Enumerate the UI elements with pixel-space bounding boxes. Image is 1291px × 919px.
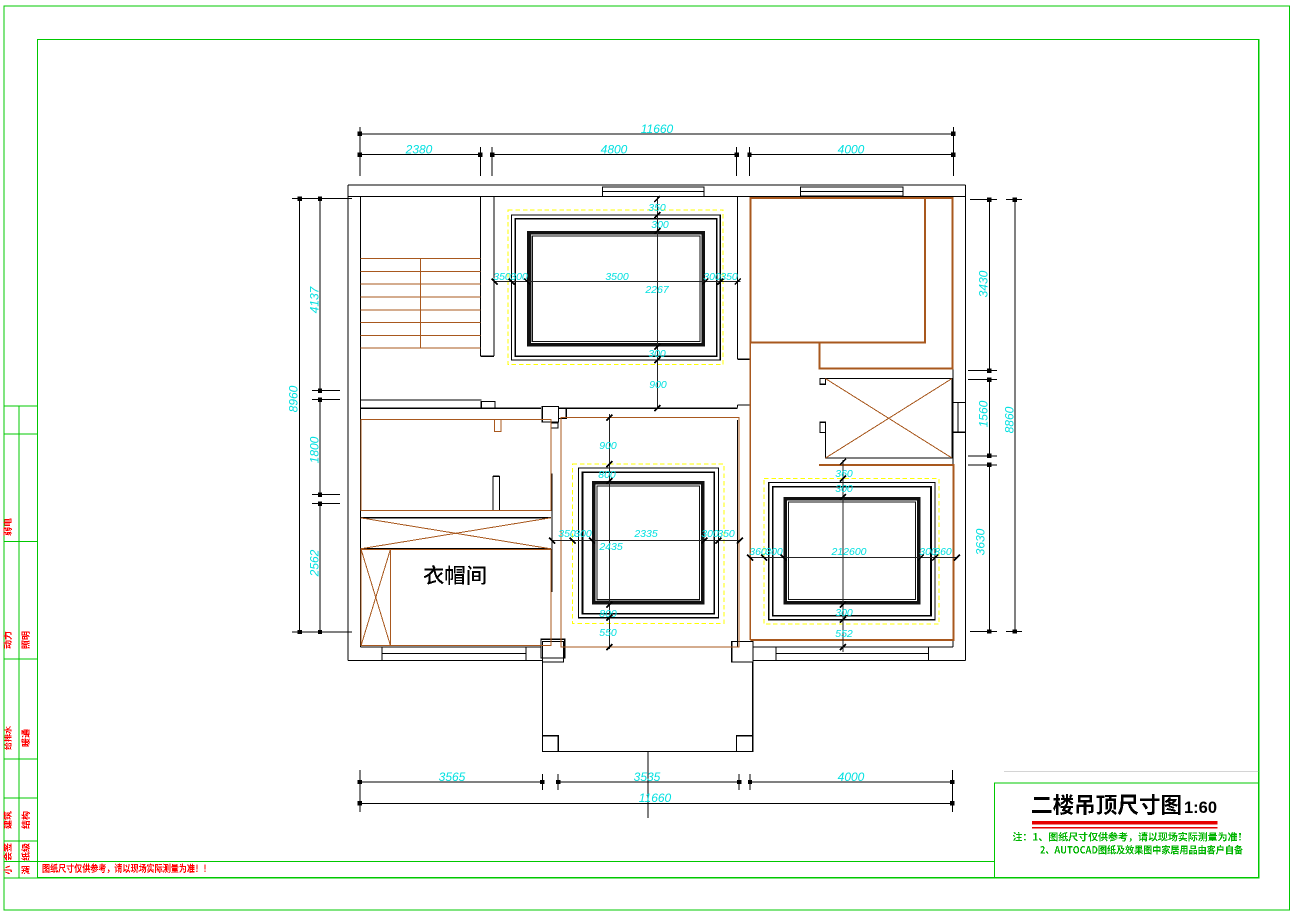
svg-text:1:60: 1:60 (1184, 799, 1217, 817)
svg-text:552: 552 (835, 628, 853, 640)
svg-text:11660: 11660 (641, 122, 674, 136)
svg-text:350: 350 (720, 271, 738, 283)
svg-text:300: 300 (510, 271, 528, 283)
svg-text:4000: 4000 (838, 770, 865, 784)
svg-text:3430: 3430 (976, 270, 990, 297)
svg-text:800: 800 (598, 469, 616, 481)
svg-text:3630: 3630 (974, 528, 988, 555)
svg-text:300: 300 (648, 348, 666, 360)
svg-text:300: 300 (835, 607, 853, 619)
svg-text:8860: 8860 (1002, 406, 1016, 433)
svg-text:1800: 1800 (308, 436, 322, 463)
svg-text:4000: 4000 (838, 143, 865, 157)
svg-text:2562: 2562 (308, 549, 322, 577)
svg-text:4137: 4137 (308, 285, 322, 313)
svg-text:900: 900 (599, 440, 617, 452)
svg-text:350: 350 (493, 271, 511, 283)
svg-text:300: 300 (765, 546, 783, 558)
svg-text:3535: 3535 (634, 770, 661, 784)
svg-text:8960: 8960 (287, 385, 301, 412)
svg-text:212600: 212600 (830, 546, 866, 558)
svg-text:350: 350 (648, 202, 666, 214)
svg-text:300: 300 (835, 483, 853, 495)
svg-text:3500: 3500 (605, 271, 629, 283)
svg-text:2335: 2335 (633, 528, 658, 540)
svg-text:2380: 2380 (405, 143, 433, 157)
svg-text:900: 900 (649, 379, 667, 391)
svg-text:2435: 2435 (598, 541, 623, 553)
svg-text:3565: 3565 (439, 770, 466, 784)
svg-text:1560: 1560 (976, 400, 990, 427)
svg-text:4800: 4800 (601, 143, 628, 157)
svg-text:2267: 2267 (644, 284, 670, 296)
svg-text:550: 550 (599, 627, 617, 639)
svg-text:11660: 11660 (639, 791, 672, 805)
